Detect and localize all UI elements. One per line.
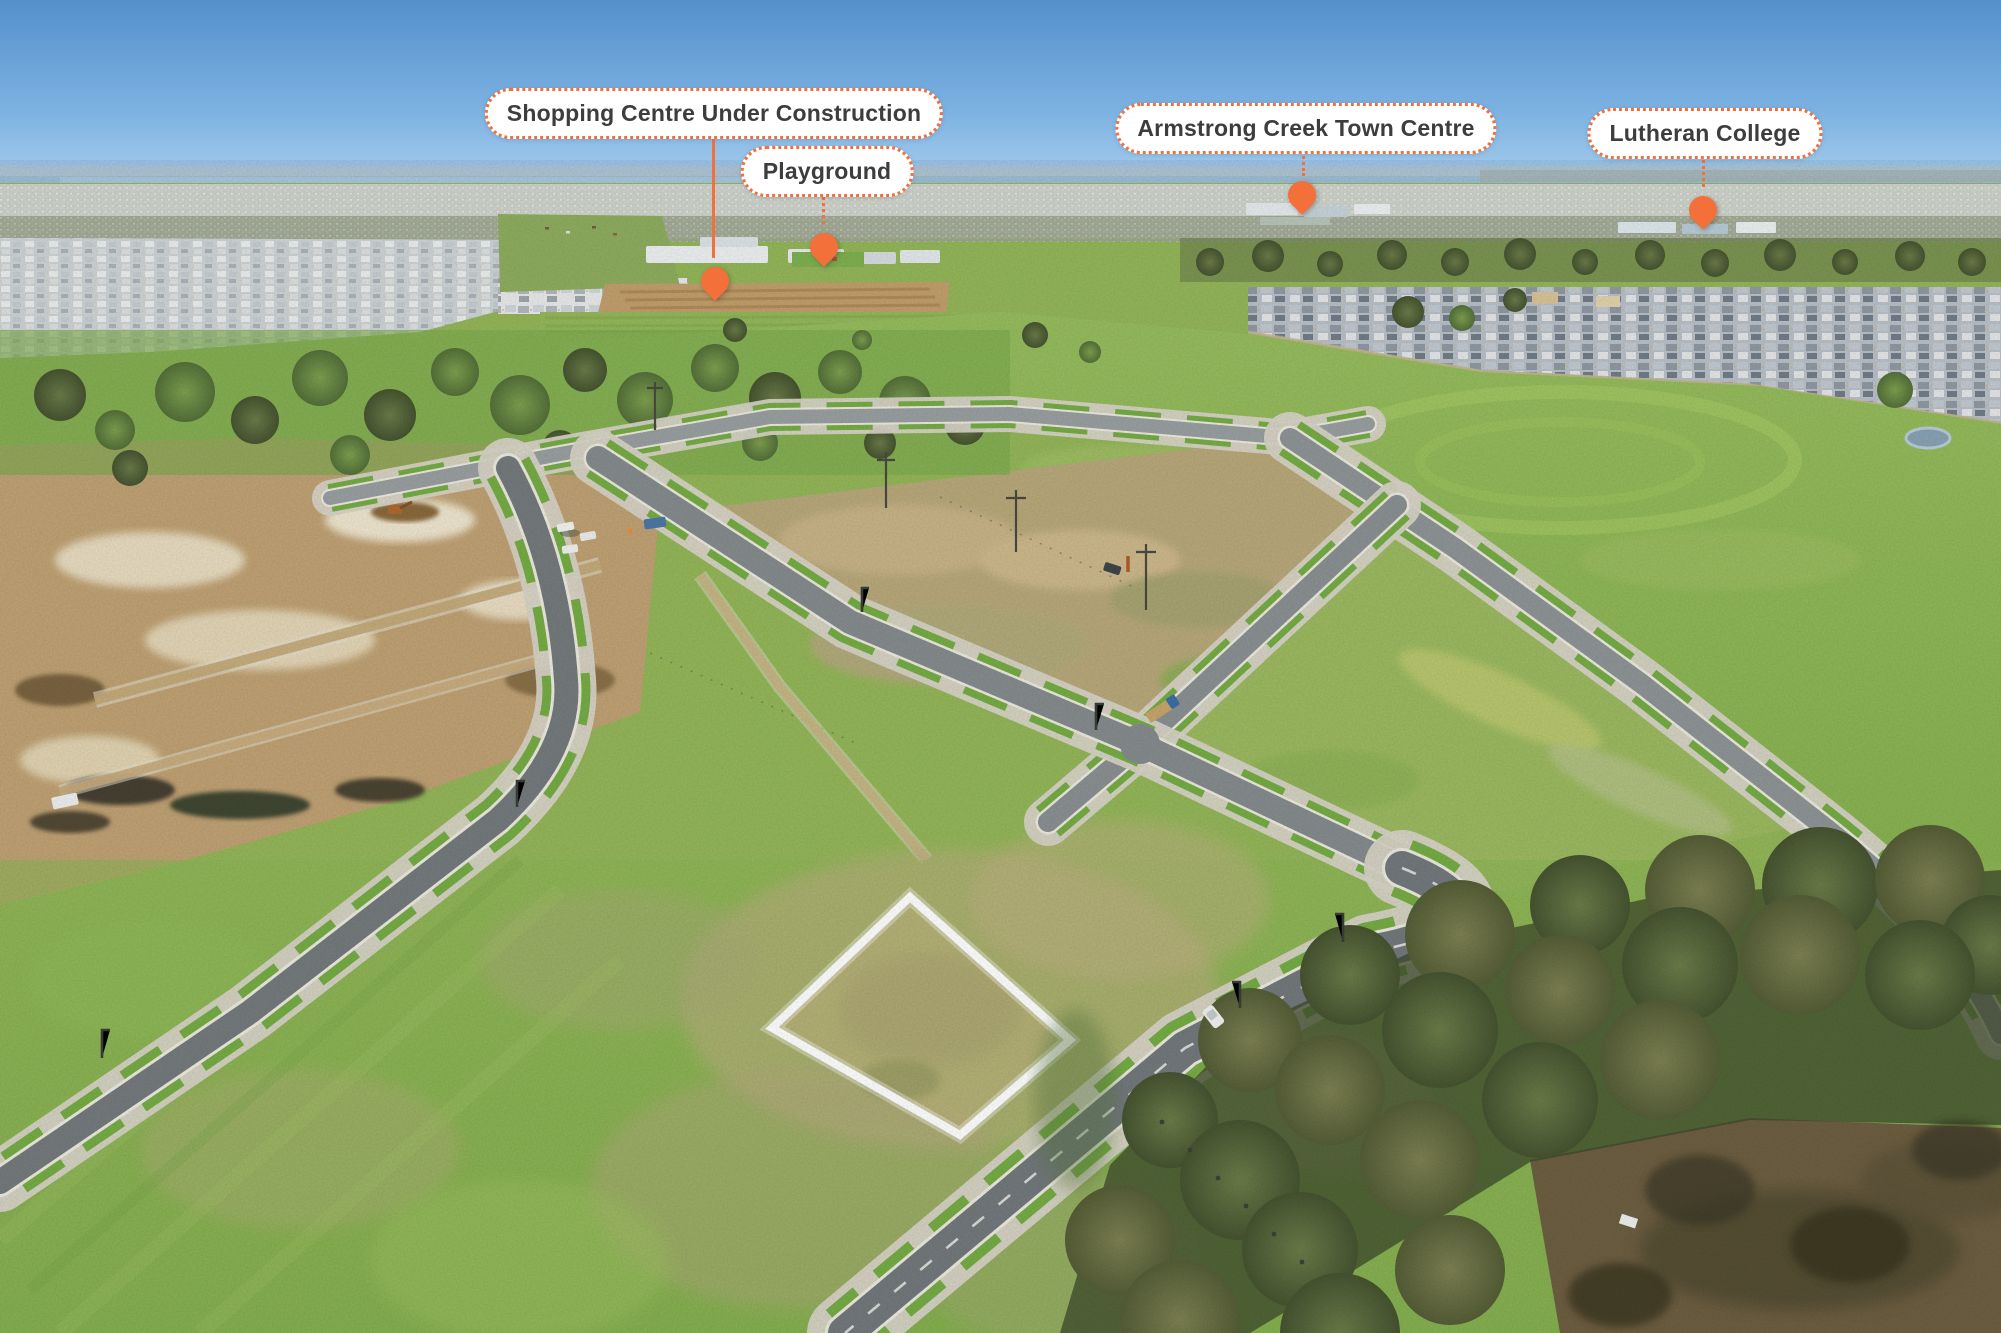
photo-grain <box>0 160 2001 1333</box>
pin-connector-line <box>1702 155 1705 187</box>
pin-connector-line <box>712 138 715 258</box>
location-label: Shopping Centre Under Construction <box>485 88 943 139</box>
aerial-photo: Shopping Centre Under Construction Playg… <box>0 0 2001 1333</box>
location-label: Playground <box>741 146 914 197</box>
pin-connector-line <box>1302 151 1305 176</box>
location-label: Armstrong Creek Town Centre <box>1115 103 1496 154</box>
location-label: Lutheran College <box>1587 108 1822 159</box>
